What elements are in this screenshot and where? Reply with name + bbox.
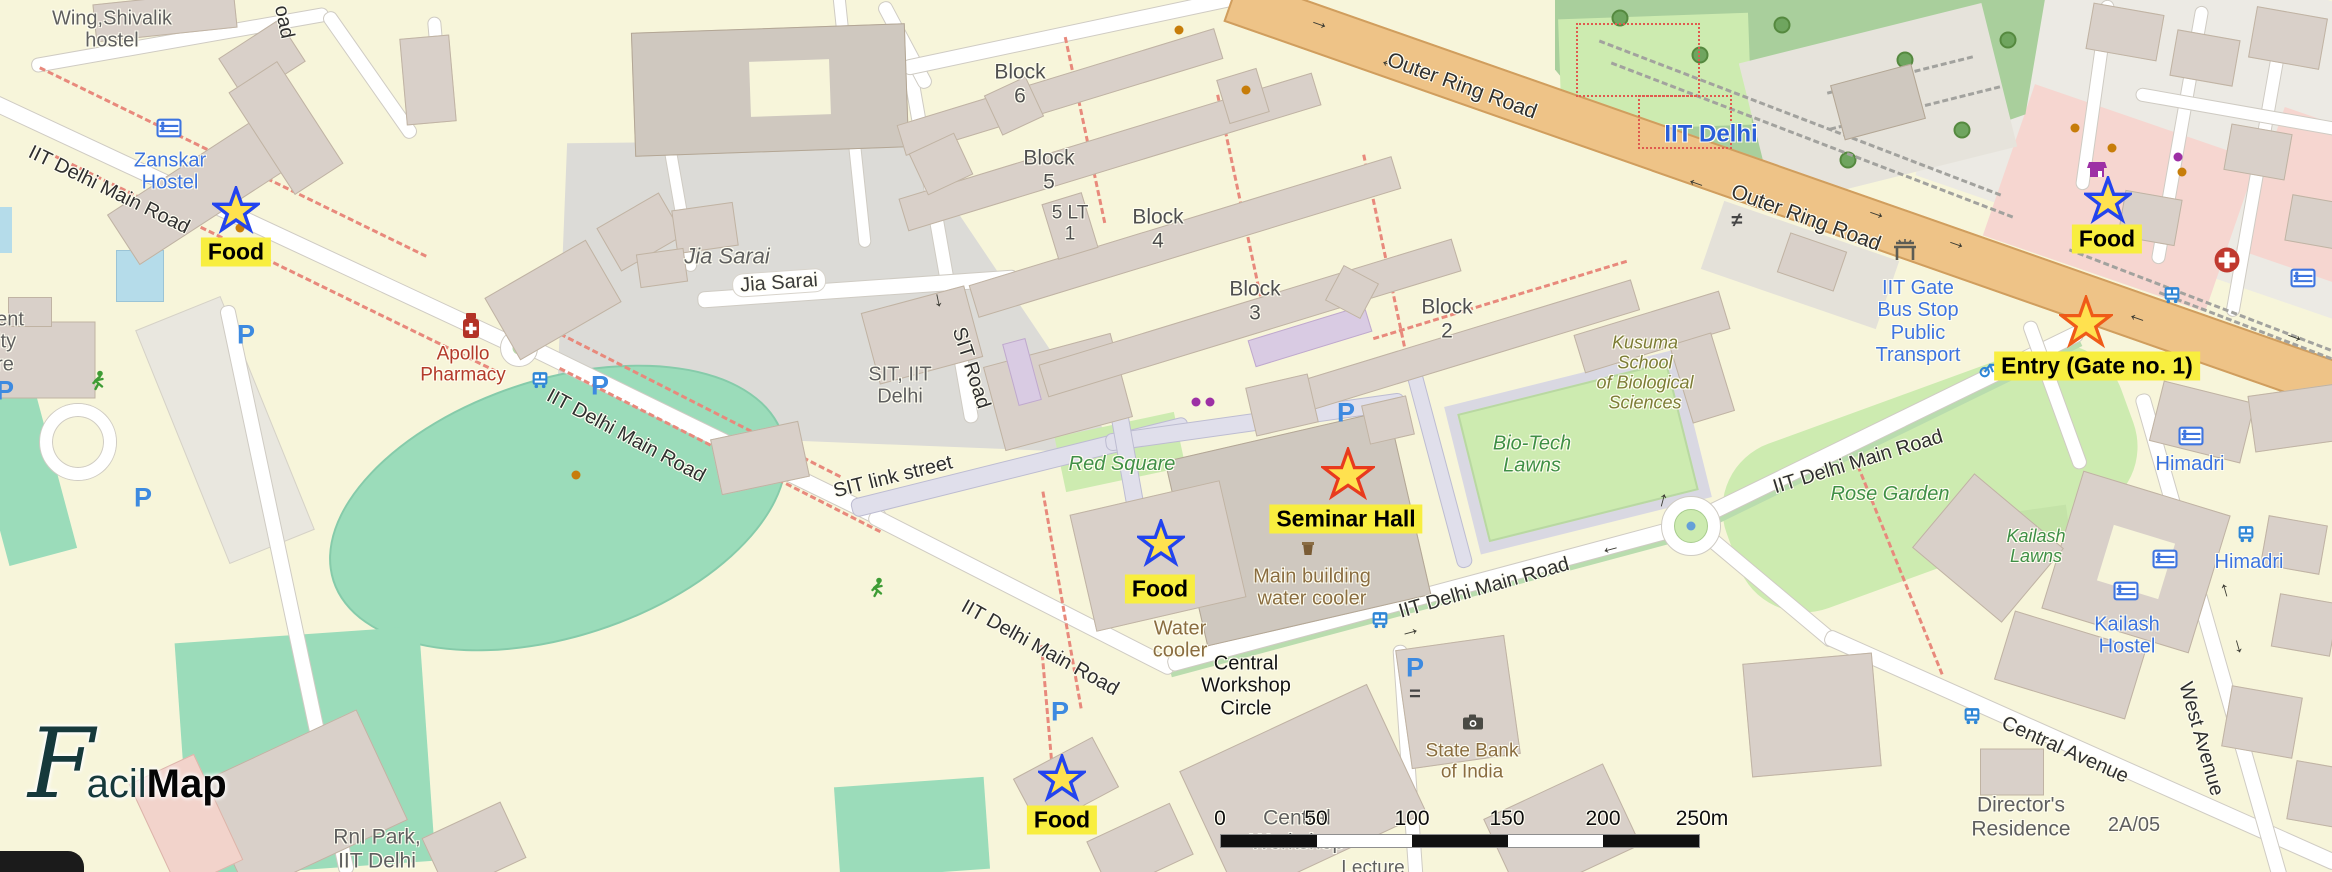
scale-segment	[1221, 835, 1317, 847]
nature-label-red-square: Red Square	[1069, 453, 1176, 475]
poi-dot	[1206, 398, 1215, 407]
parking-icon: P	[591, 371, 609, 402]
tree-icon	[1954, 122, 1971, 139]
seminar-hall-marker-star[interactable]	[1321, 447, 1375, 501]
place-label-zanskar-hostel: Zanskar Hostel	[134, 150, 206, 195]
bus-stop-icon	[2237, 525, 2256, 544]
scale-segment	[1603, 835, 1699, 847]
food-marker-star[interactable]	[1137, 519, 1185, 567]
tree-icon	[2000, 32, 2017, 49]
fountain-icon	[1687, 522, 1696, 531]
scale-bar	[1220, 834, 1700, 848]
scale-segment	[1317, 835, 1413, 847]
nursery-dotted-border	[1576, 23, 1700, 97]
building	[2247, 384, 2332, 453]
scale-tick: 100	[1394, 807, 1429, 831]
parking-icon: P	[1051, 697, 1069, 728]
building	[2221, 685, 2303, 759]
poi-dot	[1192, 398, 1201, 407]
nature-label-bio-tech-lawns: Bio-Tech Lawns	[1493, 433, 1571, 478]
place-label-sit-iit-delhi: SIT, IIT Delhi	[868, 364, 931, 409]
tree-icon	[1774, 17, 1791, 34]
facilmap-logo: FacilMap	[28, 724, 227, 807]
logo-text-acil: acil	[87, 762, 147, 807]
logo-text-map: Map	[147, 762, 227, 807]
barrier-icon: ≠	[1732, 210, 1743, 233]
building	[2284, 194, 2332, 250]
building-label-block-3: Block 3	[1229, 277, 1280, 324]
scale-tick: 200	[1585, 807, 1620, 831]
map-canvas[interactable]: P P P P P P P = ≠ → ← ← → → → ← ← ↑ ↑ ↓ …	[0, 0, 2332, 872]
amenity-label-state-bank: State Bank of India	[1426, 741, 1519, 784]
place-label-himadri: Himadri	[2215, 551, 2284, 573]
amenity-label-main-building-water-cooler: Main building water cooler	[1253, 566, 1371, 611]
place-label-iit-delhi: IIT Delhi	[1664, 122, 1757, 149]
building-label-block-5: Block 5	[1023, 146, 1074, 193]
scale-tick: 150	[1489, 807, 1524, 831]
food-marker-star[interactable]	[212, 186, 260, 234]
place-label-lecture: Lecture	[1341, 857, 1404, 872]
hospital-icon	[2214, 247, 2241, 274]
food-marker-star[interactable]	[2084, 176, 2132, 224]
parking-stripes: =	[1409, 684, 1421, 707]
scale-tick: 250m	[1676, 807, 1729, 831]
place-label-kailash-hostel: Kailash Hostel	[2094, 614, 2160, 659]
logo-letter-f: F	[28, 724, 95, 806]
food-marker-star[interactable]	[1038, 754, 1086, 802]
poi-dot	[2071, 124, 2080, 133]
hostel-icon	[2153, 550, 2178, 569]
place-label-directors-residence: Director's Residence	[1971, 793, 2070, 840]
amenity-label-water-cooler: Water cooler	[1153, 618, 1207, 663]
hostel-icon	[2114, 582, 2139, 601]
bus-stop-icon	[531, 371, 550, 390]
food-marker-label[interactable]: Food	[1027, 806, 1097, 835]
place-label-shivalik-hostel: Wing,Shivalik hostel	[52, 8, 172, 53]
building	[399, 34, 456, 125]
food-marker-label[interactable]: Food	[201, 238, 271, 267]
place-label-himadri: Himadri	[2156, 453, 2225, 475]
place-label-2a05: 2A/05	[2108, 814, 2160, 836]
bus-stop-icon	[1963, 707, 1982, 726]
place-label-jia-sarai: Jia Sarai	[684, 245, 770, 270]
scale-tick: 0	[1214, 807, 1226, 831]
transport-label-iit-gate-bus-stop: IIT Gate Bus Stop Public Transport	[1876, 277, 1961, 367]
building-label-block-4: Block 4	[1132, 205, 1183, 252]
oneway-arrow-icon: ↓	[2230, 633, 2247, 659]
city-gate-icon	[1892, 238, 1918, 262]
seminar-hall-marker-label[interactable]: Seminar Hall	[1269, 505, 1422, 534]
scale-tick: 50	[1304, 807, 1327, 831]
building	[1361, 395, 1415, 444]
water-cooler-icon	[1301, 541, 1315, 558]
camera-icon	[1463, 715, 1483, 730]
poi-dot	[2108, 144, 2117, 153]
building	[421, 802, 526, 872]
building	[636, 248, 688, 288]
sports-field	[834, 777, 990, 872]
building-label-block-6: Block 6	[994, 60, 1045, 107]
building	[1086, 803, 1193, 872]
nature-label-kailash-lawns: Kailash Lawns	[2006, 526, 2065, 566]
runner-icon	[868, 577, 884, 599]
scale-segment	[1412, 835, 1508, 847]
bus-stop-icon	[2163, 286, 2182, 305]
hostel-icon	[157, 119, 182, 138]
hostel-icon	[2179, 427, 2204, 446]
food-marker-label[interactable]: Food	[2072, 225, 2142, 254]
building-label-5lt1: 5 LT 1	[1052, 203, 1089, 246]
building-courtyard	[749, 59, 831, 117]
runner-icon	[89, 370, 105, 392]
building	[2271, 593, 2332, 657]
poi-dot	[1242, 86, 1251, 95]
entry-gate-marker-label[interactable]: Entry (Gate no. 1)	[1994, 352, 2200, 381]
pharmacy-icon	[460, 312, 482, 340]
poi-dot	[2178, 168, 2187, 177]
place-label-rni-park: RnI Park, IIT Delhi	[333, 825, 421, 872]
parking-icon: P	[1406, 653, 1424, 684]
food-marker-label[interactable]: Food	[1125, 575, 1195, 604]
poi-dot	[2174, 153, 2183, 162]
place-label-partial-left: ent ity re	[0, 308, 24, 375]
entry-gate-marker-star[interactable]	[2059, 295, 2113, 349]
amenity-label-apollo-pharmacy: Apollo Pharmacy	[420, 344, 506, 387]
parking-icon: P	[237, 320, 255, 351]
pool-blue	[0, 207, 12, 253]
poi-dot	[572, 471, 581, 480]
building-label-block-2: Block 2	[1421, 295, 1472, 342]
oneway-arrow-icon: ↑	[2217, 577, 2234, 603]
bus-stop-icon	[1371, 611, 1390, 630]
building	[1742, 653, 1881, 778]
parking-icon: P	[0, 376, 14, 407]
building	[2286, 760, 2332, 830]
place-label-kusuma-school: Kusuma School of Biological Sciences	[1596, 333, 1693, 414]
building-directors-residence	[1980, 749, 2044, 796]
poi-dot	[1175, 26, 1184, 35]
panel-corner	[0, 851, 84, 872]
nature-label-rose-garden: Rose Garden	[1831, 483, 1950, 505]
scale-segment	[1508, 835, 1604, 847]
hostel-icon	[2291, 269, 2316, 288]
road-loop	[40, 404, 116, 480]
parking-icon: P	[1337, 398, 1355, 429]
parking-icon: P	[134, 483, 152, 514]
junction-label-central-workshop-circle: Central Workshop Circle	[1201, 652, 1291, 719]
